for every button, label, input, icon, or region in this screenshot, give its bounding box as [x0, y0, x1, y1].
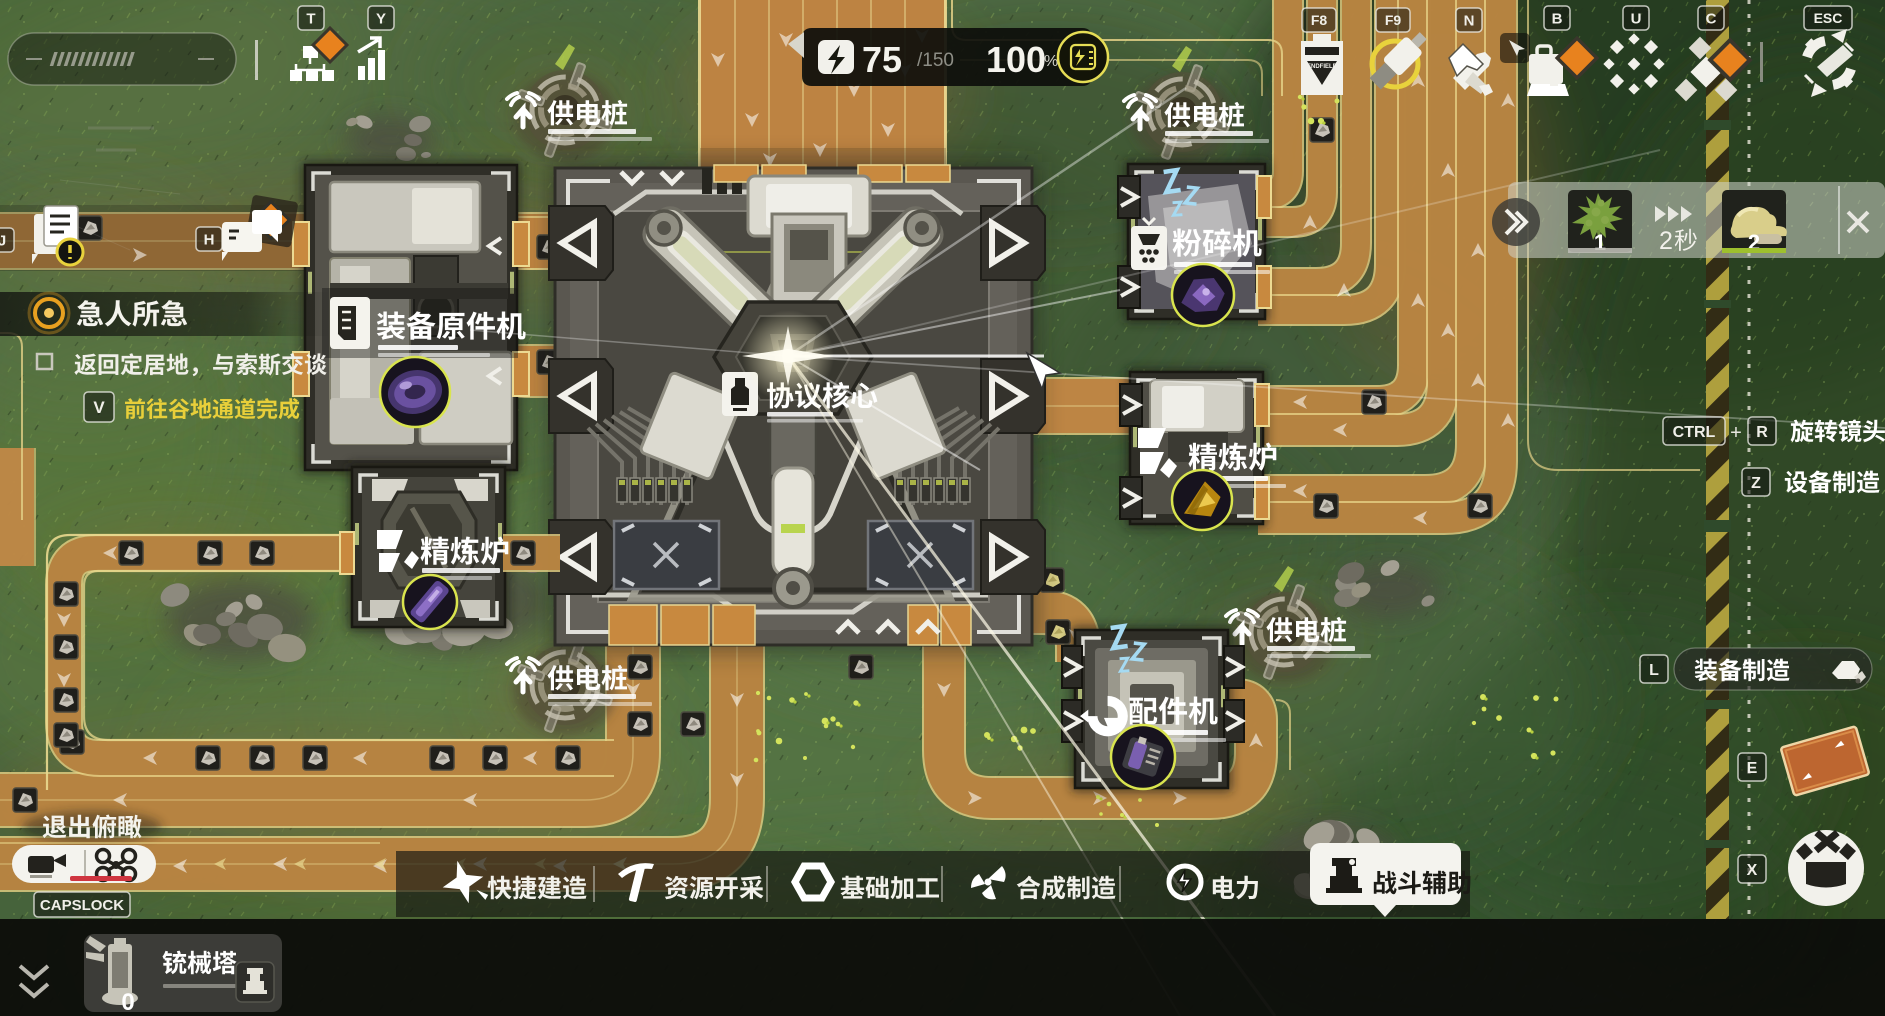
svg-text:+: + — [1730, 422, 1742, 444]
svg-text:ENDFIELD: ENDFIELD — [1307, 64, 1338, 70]
svg-text:Y: Y — [376, 10, 386, 27]
svg-text:X: X — [1747, 862, 1758, 879]
svg-text:CTRL: CTRL — [1673, 424, 1716, 441]
svg-text:100: 100 — [986, 39, 1046, 80]
svg-text:/150: /150 — [917, 50, 954, 71]
svg-text:CAPSLOCK: CAPSLOCK — [40, 897, 124, 914]
svg-text:U: U — [1631, 10, 1642, 27]
svg-text:B: B — [1552, 10, 1563, 27]
svg-text:J: J — [0, 232, 6, 249]
svg-text:2: 2 — [1659, 227, 1673, 255]
svg-text:R: R — [1756, 424, 1768, 441]
svg-text:75: 75 — [862, 39, 902, 80]
svg-text:%: % — [1044, 53, 1058, 70]
svg-text:Z: Z — [1751, 475, 1761, 492]
svg-text:N: N — [1464, 12, 1475, 29]
svg-text:F8: F8 — [1311, 12, 1328, 28]
svg-text:E: E — [1747, 760, 1758, 777]
svg-text:F9: F9 — [1385, 12, 1402, 28]
svg-text:T: T — [306, 10, 315, 27]
svg-text:ESC: ESC — [1814, 10, 1843, 26]
svg-text:C: C — [1706, 10, 1717, 27]
svg-text:V: V — [93, 398, 105, 417]
svg-text:H: H — [204, 231, 215, 248]
svg-text:0: 0 — [121, 989, 134, 1016]
svg-text:L: L — [1649, 662, 1659, 679]
